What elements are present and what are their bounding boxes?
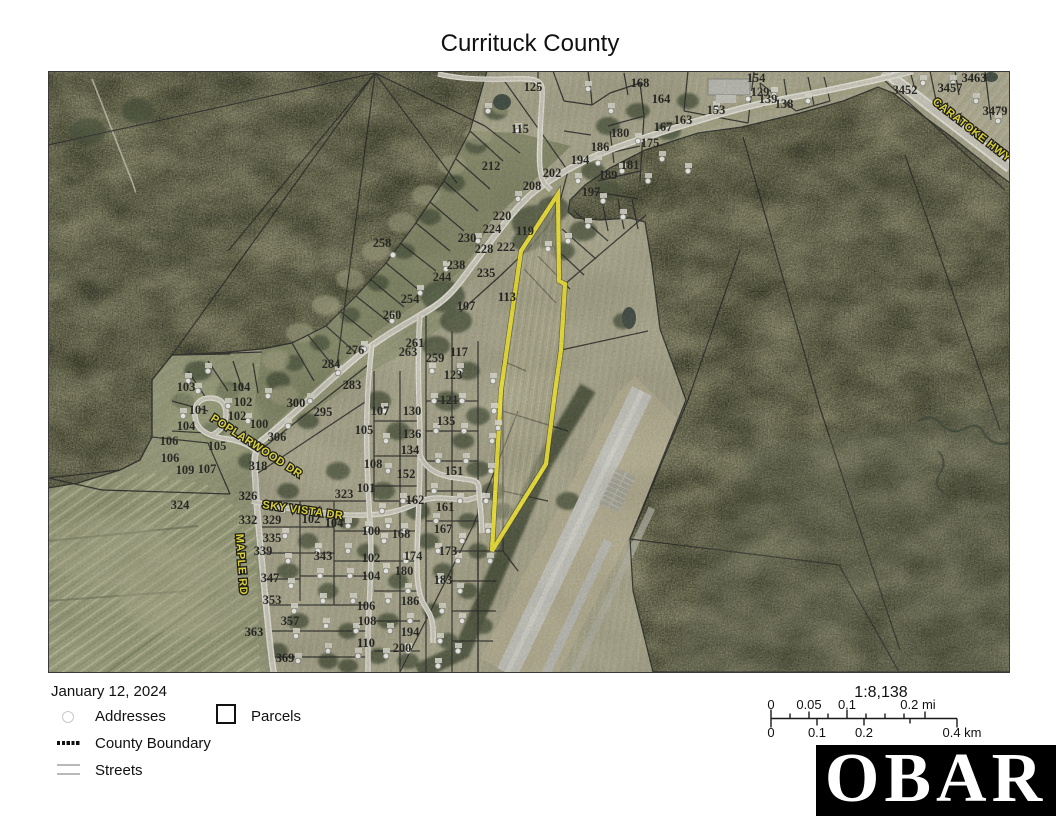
svg-text:0: 0 [767,697,774,712]
svg-text:0.2 mi: 0.2 mi [900,697,936,712]
svg-text:0: 0 [767,725,774,740]
svg-text:0.1: 0.1 [838,697,856,712]
svg-text:0.05: 0.05 [796,697,821,712]
svg-text:0.1: 0.1 [808,725,826,740]
svg-text:0.2: 0.2 [855,725,873,740]
svg-text:0.4 km: 0.4 km [942,725,981,740]
